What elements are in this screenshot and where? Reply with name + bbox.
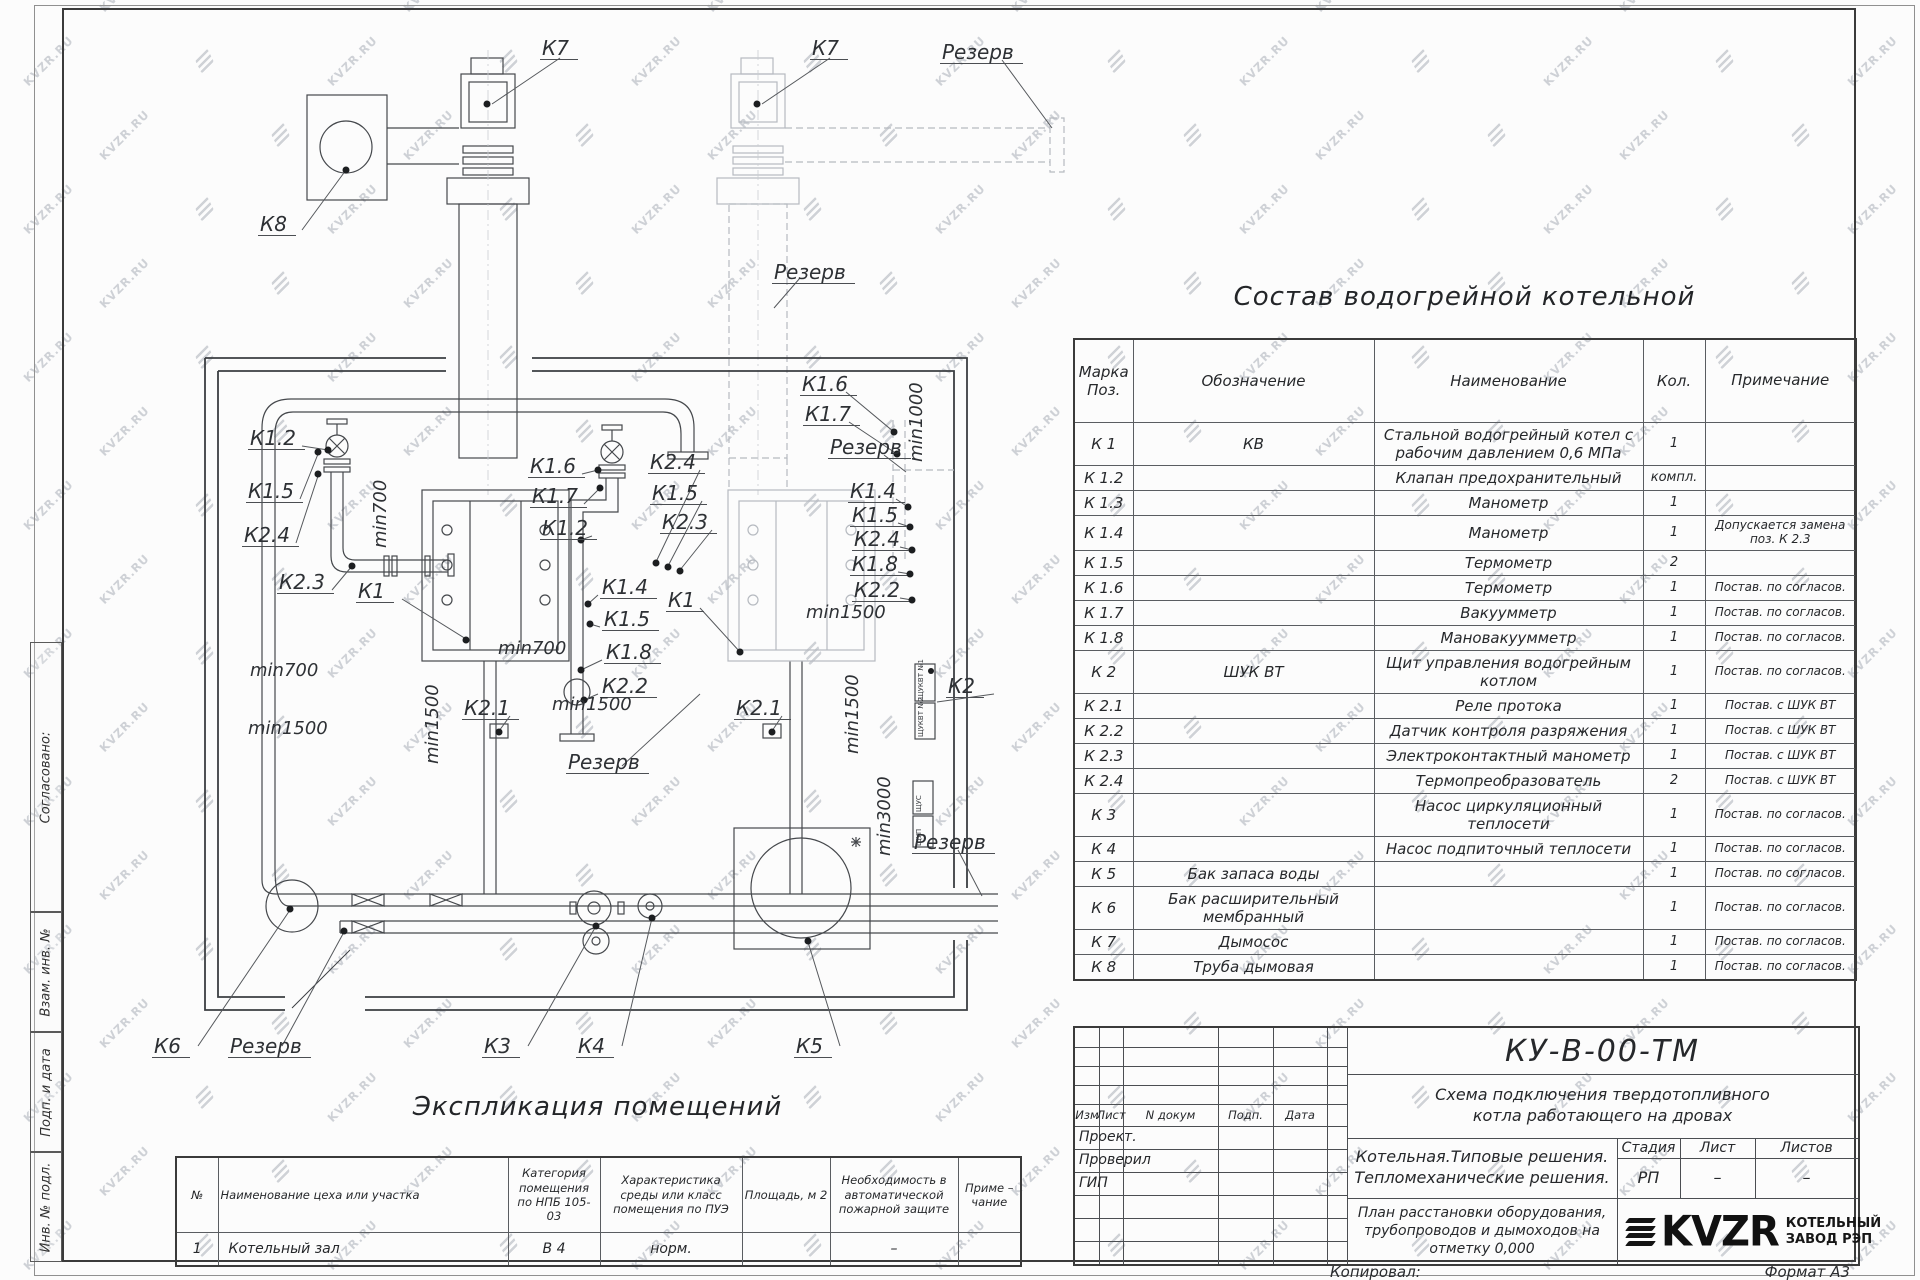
side-strip-box: Взам. инв. № bbox=[30, 912, 62, 1032]
copied-label: Копировал: bbox=[1330, 1263, 1421, 1280]
table-cell: Бак расширительный мембранный bbox=[1133, 886, 1374, 929]
position-label: К1.2 bbox=[248, 428, 305, 450]
table-cell: К 7 bbox=[1074, 929, 1133, 954]
position-label: Резерв bbox=[828, 437, 911, 459]
stage-header: Листов bbox=[1755, 1138, 1858, 1158]
dimension-label: min1500 bbox=[248, 720, 328, 738]
table-row: К 8Труба дымовая1Постав. по согласов. bbox=[1074, 954, 1856, 980]
table-cell: 1 bbox=[176, 1233, 218, 1267]
table-row: К 2.2Датчик контроля разряжения1Постав. … bbox=[1074, 718, 1856, 743]
table-cell: Постав. по согласов. bbox=[1705, 954, 1856, 980]
table-row: К 1.3Манометр1 bbox=[1074, 491, 1856, 516]
title-block-line bbox=[1075, 1047, 1347, 1048]
flue-pipe-k8 bbox=[320, 121, 372, 173]
dimension-label: min700 bbox=[372, 480, 390, 548]
table-row: 1Котельный залВ 4норм.– bbox=[176, 1233, 1021, 1267]
position-label: Резерв bbox=[912, 832, 995, 854]
stage-value: РП bbox=[1617, 1158, 1680, 1198]
dimension-label: min700 bbox=[250, 662, 318, 680]
stage-header: Стадия bbox=[1617, 1138, 1680, 1158]
logo-bar bbox=[1625, 1226, 1656, 1231]
position-label: К1 bbox=[666, 590, 704, 612]
dimension-label: min1500 bbox=[552, 696, 632, 714]
table-cell: Постав. по согласов. bbox=[1705, 836, 1856, 861]
table-cell: Постав. с ШУК ВТ bbox=[1705, 718, 1856, 743]
table-cell: 1 bbox=[1643, 861, 1705, 886]
dimension-label: min1500 bbox=[424, 684, 442, 764]
equipment-table: Марка Поз.ОбозначениеНаименованиеКол.При… bbox=[1073, 338, 1857, 981]
position-label: К2 bbox=[946, 676, 984, 698]
table-row: К 1КВСтальной водогрейный котел с рабочи… bbox=[1074, 423, 1856, 466]
table-row: К 4Насос подпиточный теплосети1Постав. п… bbox=[1074, 836, 1856, 861]
table-cell bbox=[1705, 491, 1856, 516]
table-cell: К 5 bbox=[1074, 861, 1133, 886]
position-label: К1.8 bbox=[604, 642, 661, 664]
table-row: К 1.5Термометр2 bbox=[1074, 550, 1856, 575]
table-cell: К 1.6 bbox=[1074, 575, 1133, 600]
table-cell bbox=[1133, 516, 1374, 551]
cabinet-label: ЩУКВТ №1 bbox=[917, 659, 925, 699]
position-label: К1.4 bbox=[848, 481, 905, 503]
table-cell: Насос подпиточный теплосети bbox=[1374, 836, 1643, 861]
table-cell: Мановакуумметр bbox=[1374, 625, 1643, 650]
table-row: К 7Дымосос1Постав. по согласов. bbox=[1074, 929, 1856, 954]
table-cell bbox=[1133, 575, 1374, 600]
column-header: Площадь, м 2 bbox=[742, 1157, 830, 1233]
logo-bar bbox=[1625, 1241, 1656, 1246]
side-strip-box: Инв. № подл. bbox=[30, 1152, 62, 1262]
cabinet-label: ЩУС bbox=[915, 795, 923, 812]
table-row: К 1.2Клапан предохранительныйкомпл. bbox=[1074, 466, 1856, 491]
table-cell: 1 bbox=[1643, 693, 1705, 718]
title-block-line bbox=[1075, 1218, 1347, 1219]
side-strip-label: Инв. № подл. bbox=[39, 1162, 54, 1252]
cabinet-label: ЩУП bbox=[915, 829, 923, 846]
position-label: Резерв bbox=[940, 42, 1023, 64]
column-header: Подп. bbox=[1218, 1104, 1273, 1126]
column-header: Марка Поз. bbox=[1074, 339, 1133, 423]
table-cell: ШУК ВТ bbox=[1133, 650, 1374, 693]
table-cell: Термопреобразователь bbox=[1374, 768, 1643, 793]
table-cell: компл. bbox=[1643, 466, 1705, 491]
table-cell bbox=[1133, 491, 1374, 516]
column-header: Обозначение bbox=[1133, 339, 1374, 423]
table-row: К 6Бак расширительный мембранный1Постав.… bbox=[1074, 886, 1856, 929]
table-cell: К 1.2 bbox=[1074, 466, 1133, 491]
table-cell: Насос циркуляционный теплосети bbox=[1374, 793, 1643, 836]
table-cell bbox=[1374, 954, 1643, 980]
dimension-label: min700 bbox=[498, 640, 566, 658]
column-header: N докум bbox=[1123, 1104, 1218, 1126]
position-label: К2.1 bbox=[462, 698, 519, 720]
table-cell: 1 bbox=[1643, 929, 1705, 954]
table-row: К 2.1Реле протока1Постав. с ШУК ВТ bbox=[1074, 693, 1856, 718]
table-cell bbox=[742, 1233, 830, 1267]
table-cell bbox=[1133, 625, 1374, 650]
table-cell bbox=[1133, 793, 1374, 836]
table-cell: Клапан предохранительный bbox=[1374, 466, 1643, 491]
role-label: Проект. bbox=[1079, 1126, 1219, 1149]
position-label: К1.6 bbox=[800, 374, 857, 396]
table-cell: 1 bbox=[1643, 600, 1705, 625]
table-cell bbox=[1374, 861, 1643, 886]
position-label: Резерв bbox=[772, 262, 855, 284]
position-label: К1 bbox=[356, 581, 394, 603]
table-cell: Постав. по согласов. bbox=[1705, 575, 1856, 600]
table-cell: 2 bbox=[1643, 768, 1705, 793]
table-cell: 1 bbox=[1643, 625, 1705, 650]
table-cell: 1 bbox=[1643, 575, 1705, 600]
table-cell: Постав. с ШУК ВТ bbox=[1705, 693, 1856, 718]
position-label: К2.4 bbox=[242, 525, 299, 547]
position-label: К2.3 bbox=[660, 512, 717, 534]
table-cell: 1 bbox=[1643, 516, 1705, 551]
position-label: К6 bbox=[152, 1036, 190, 1058]
title-block-line bbox=[1327, 1028, 1328, 1264]
table-cell: Электроконтактный манометр bbox=[1374, 743, 1643, 768]
table-cell: К 4 bbox=[1074, 836, 1133, 861]
stage-value: – bbox=[1680, 1158, 1755, 1198]
table-row: К 1.7Вакуумметр1Постав. по согласов. bbox=[1074, 600, 1856, 625]
position-label: К2.3 bbox=[277, 572, 334, 594]
table-cell: К 1.7 bbox=[1074, 600, 1133, 625]
side-strip-label: Согласовано: bbox=[39, 731, 54, 823]
position-label: К1.2 bbox=[540, 518, 597, 540]
table-cell: К 1.8 bbox=[1074, 625, 1133, 650]
table-cell bbox=[1705, 466, 1856, 491]
table-cell: 1 bbox=[1643, 886, 1705, 929]
table-cell: норм. bbox=[600, 1233, 742, 1267]
position-label: К1.8 bbox=[850, 554, 907, 576]
table-cell: Постав. с ШУК ВТ bbox=[1705, 743, 1856, 768]
column-header: Кол. bbox=[1643, 339, 1705, 423]
table-cell: Котельный зал bbox=[218, 1233, 508, 1267]
side-strip-label: Подп. и дата bbox=[39, 1048, 54, 1137]
table-row: К 1.4Манометр1Допускается замена поз. К … bbox=[1074, 516, 1856, 551]
title-block-line bbox=[1075, 1085, 1347, 1086]
table-cell: Манометр bbox=[1374, 516, 1643, 551]
table-cell: Бак запаса воды bbox=[1133, 861, 1374, 886]
table-cell: К 2.3 bbox=[1074, 743, 1133, 768]
table-cell: 2 bbox=[1643, 550, 1705, 575]
rooms-table-title: Экспликация помещений bbox=[175, 1092, 1020, 1122]
table-cell: 1 bbox=[1643, 793, 1705, 836]
table-cell: Постав. по согласов. bbox=[1705, 861, 1856, 886]
logo-stripes-icon bbox=[1627, 1216, 1654, 1249]
title-block-line bbox=[1273, 1028, 1274, 1264]
table-cell: Датчик контроля разряжения bbox=[1374, 718, 1643, 743]
logo-caption: КОТЕЛЬНЫЙ ЗАВОД РЭП bbox=[1786, 1216, 1881, 1247]
side-strip-box: Согласовано: bbox=[30, 642, 62, 912]
table-cell: Манометр bbox=[1374, 491, 1643, 516]
table-cell: К 1.5 bbox=[1074, 550, 1133, 575]
table-cell bbox=[958, 1233, 1021, 1267]
pump-k3 bbox=[577, 891, 611, 925]
position-label: К2.4 bbox=[648, 452, 705, 474]
position-label: К2.4 bbox=[852, 529, 909, 551]
table-cell: Постав. с ШУК ВТ bbox=[1705, 768, 1856, 793]
company-logo: KVZRКОТЕЛЬНЫЙ ЗАВОД РЭП bbox=[1627, 1204, 1851, 1260]
table-cell bbox=[1133, 836, 1374, 861]
table-cell: 1 bbox=[1643, 836, 1705, 861]
format-label: Формат А3 bbox=[1700, 1263, 1850, 1280]
table-row: К 5Бак запаса воды1Постав. по согласов. bbox=[1074, 861, 1856, 886]
column-header: Категория помещения по НПБ 105-03 bbox=[508, 1157, 600, 1233]
drawing-sheet: KVZR.RUKVZR.RUKVZR.RUKVZR.RUKVZR.RUKVZR.… bbox=[0, 0, 1920, 1280]
table-cell: КВ bbox=[1133, 423, 1374, 466]
table-cell bbox=[1133, 718, 1374, 743]
document-number: КУ-В-00-ТМ bbox=[1347, 1028, 1858, 1074]
dimension-label: min3000 bbox=[876, 776, 894, 856]
table-cell: К 2 bbox=[1074, 650, 1133, 693]
role-label: ГИП bbox=[1079, 1172, 1219, 1195]
table-cell: Стальной водогрейный котел с рабочим дав… bbox=[1374, 423, 1643, 466]
table-cell: 1 bbox=[1643, 423, 1705, 466]
table-cell: К 8 bbox=[1074, 954, 1133, 980]
cabinet-label: ЩУКВТ №2 bbox=[917, 697, 925, 737]
table-cell bbox=[1705, 423, 1856, 466]
table-cell: – bbox=[830, 1233, 958, 1267]
table-row: К 3Насос циркуляционный теплосети1Постав… bbox=[1074, 793, 1856, 836]
position-label: К1.5 bbox=[246, 481, 303, 503]
logo-word: KVZR bbox=[1661, 1208, 1779, 1256]
position-label: К1.5 bbox=[602, 609, 659, 631]
table-cell: Постав. по согласов. bbox=[1705, 886, 1856, 929]
position-label: К8 bbox=[258, 214, 296, 236]
position-label: К3 bbox=[482, 1036, 520, 1058]
position-label: К2.1 bbox=[734, 698, 791, 720]
column-header: Необходимость в автоматической пожарной … bbox=[830, 1157, 958, 1233]
table-cell: 1 bbox=[1643, 743, 1705, 768]
position-label: К1.6 bbox=[528, 456, 585, 478]
table-cell: К 1.3 bbox=[1074, 491, 1133, 516]
table-cell bbox=[1133, 768, 1374, 793]
position-label: К4 bbox=[576, 1036, 614, 1058]
table-cell: Постав. по согласов. bbox=[1705, 625, 1856, 650]
table-cell: Допускается замена поз. К 2.3 bbox=[1705, 516, 1856, 551]
column-header: Наименование цеха или участка bbox=[218, 1157, 508, 1233]
table-cell: Термометр bbox=[1374, 575, 1643, 600]
title-block: ИзмЛистN докумПодп.ДатаПроект.ПроверилГИ… bbox=[1073, 1026, 1860, 1266]
dimension-label: min1500 bbox=[806, 604, 886, 622]
table-cell: Дымосос bbox=[1133, 929, 1374, 954]
column-header: Примечание bbox=[1705, 339, 1856, 423]
column-header: Лист bbox=[1099, 1104, 1123, 1126]
title-block-line bbox=[1075, 1066, 1347, 1067]
table-cell: К 1.4 bbox=[1074, 516, 1133, 551]
document-title: Схема подключения твердотопливного котла… bbox=[1347, 1074, 1858, 1138]
table-row: К 1.6Термометр1Постав. по согласов. bbox=[1074, 575, 1856, 600]
table-cell bbox=[1133, 466, 1374, 491]
table-cell: 1 bbox=[1643, 954, 1705, 980]
role-label: Проверил bbox=[1079, 1149, 1219, 1172]
table-cell: 1 bbox=[1643, 650, 1705, 693]
table-cell bbox=[1374, 929, 1643, 954]
table-cell: К 2.1 bbox=[1074, 693, 1133, 718]
table-row: К 2.3Электроконтактный манометр1Постав. … bbox=[1074, 743, 1856, 768]
position-label: Резерв bbox=[228, 1036, 311, 1058]
table-cell: Постав. по согласов. bbox=[1705, 793, 1856, 836]
position-label: К1.7 bbox=[803, 404, 860, 426]
column-header: Характеристика среды или класс помещения… bbox=[600, 1157, 742, 1233]
table-cell bbox=[1133, 693, 1374, 718]
position-label: Резерв bbox=[566, 752, 649, 774]
table-cell: В 4 bbox=[508, 1233, 600, 1267]
sheet-title: План расстановки оборудования, трубопров… bbox=[1347, 1198, 1617, 1264]
table-cell: К 2.2 bbox=[1074, 718, 1133, 743]
position-label: К5 bbox=[794, 1036, 832, 1058]
side-strip-box: Подп. и дата bbox=[30, 1032, 62, 1152]
table-cell: Реле протока bbox=[1374, 693, 1643, 718]
table-cell: Щит управления водогрейным котлом bbox=[1374, 650, 1643, 693]
table-cell: Постав. по согласов. bbox=[1705, 929, 1856, 954]
position-label: К1.5 bbox=[850, 505, 907, 527]
position-label: К1.4 bbox=[600, 577, 657, 599]
table-cell: Постав. по согласов. bbox=[1705, 600, 1856, 625]
equipment-table-title: Состав водогрейной котельной bbox=[1073, 282, 1856, 312]
logo-bar bbox=[1625, 1233, 1656, 1238]
position-label: К1.5 bbox=[650, 483, 707, 505]
position-label: К7 bbox=[810, 38, 848, 60]
project-name: Котельная.Типовые решения. Тепломеханиче… bbox=[1347, 1138, 1617, 1198]
stage-header: Лист bbox=[1680, 1138, 1755, 1158]
column-header: Дата bbox=[1273, 1104, 1327, 1126]
table-cell bbox=[1133, 743, 1374, 768]
position-label: К7 bbox=[540, 38, 578, 60]
column-header: Наименование bbox=[1374, 339, 1643, 423]
side-strip-label: Взам. инв. № bbox=[39, 928, 54, 1016]
column-header: № bbox=[176, 1157, 218, 1233]
position-label: К1.7 bbox=[530, 486, 587, 508]
table-cell bbox=[1705, 550, 1856, 575]
dimension-label: min1000 bbox=[908, 382, 926, 462]
table-row: К 2ШУК ВТЩит управления водогрейным котл… bbox=[1074, 650, 1856, 693]
table-cell bbox=[1133, 550, 1374, 575]
chimney-base-k8 bbox=[307, 95, 387, 200]
rooms-table: №Наименование цеха или участкаКатегория … bbox=[175, 1156, 1022, 1267]
table-cell: Термометр bbox=[1374, 550, 1643, 575]
table-row: К 2.4Термопреобразователь2Постав. с ШУК … bbox=[1074, 768, 1856, 793]
dimension-label: min1500 bbox=[844, 674, 862, 754]
leader-lines bbox=[198, 58, 1052, 1046]
table-cell: К 1 bbox=[1074, 423, 1133, 466]
table-cell: К 6 bbox=[1074, 886, 1133, 929]
logo-bar bbox=[1625, 1218, 1656, 1223]
table-cell bbox=[1133, 600, 1374, 625]
table-cell: Труба дымовая bbox=[1133, 954, 1374, 980]
table-cell: 1 bbox=[1643, 491, 1705, 516]
table-cell: Вакуумметр bbox=[1374, 600, 1643, 625]
stage-value: – bbox=[1755, 1158, 1858, 1198]
table-row: К 1.8Мановакуумметр1Постав. по согласов. bbox=[1074, 625, 1856, 650]
column-header: Приме – чание bbox=[958, 1157, 1021, 1233]
position-label: К2.2 bbox=[852, 580, 909, 602]
title-block-line bbox=[1075, 1195, 1347, 1196]
title-block-line bbox=[1075, 1241, 1347, 1242]
table-cell: К 2.4 bbox=[1074, 768, 1133, 793]
table-cell bbox=[1374, 886, 1643, 929]
table-cell: К 3 bbox=[1074, 793, 1133, 836]
table-cell: Постав. по согласов. bbox=[1705, 650, 1856, 693]
table-cell: 1 bbox=[1643, 718, 1705, 743]
